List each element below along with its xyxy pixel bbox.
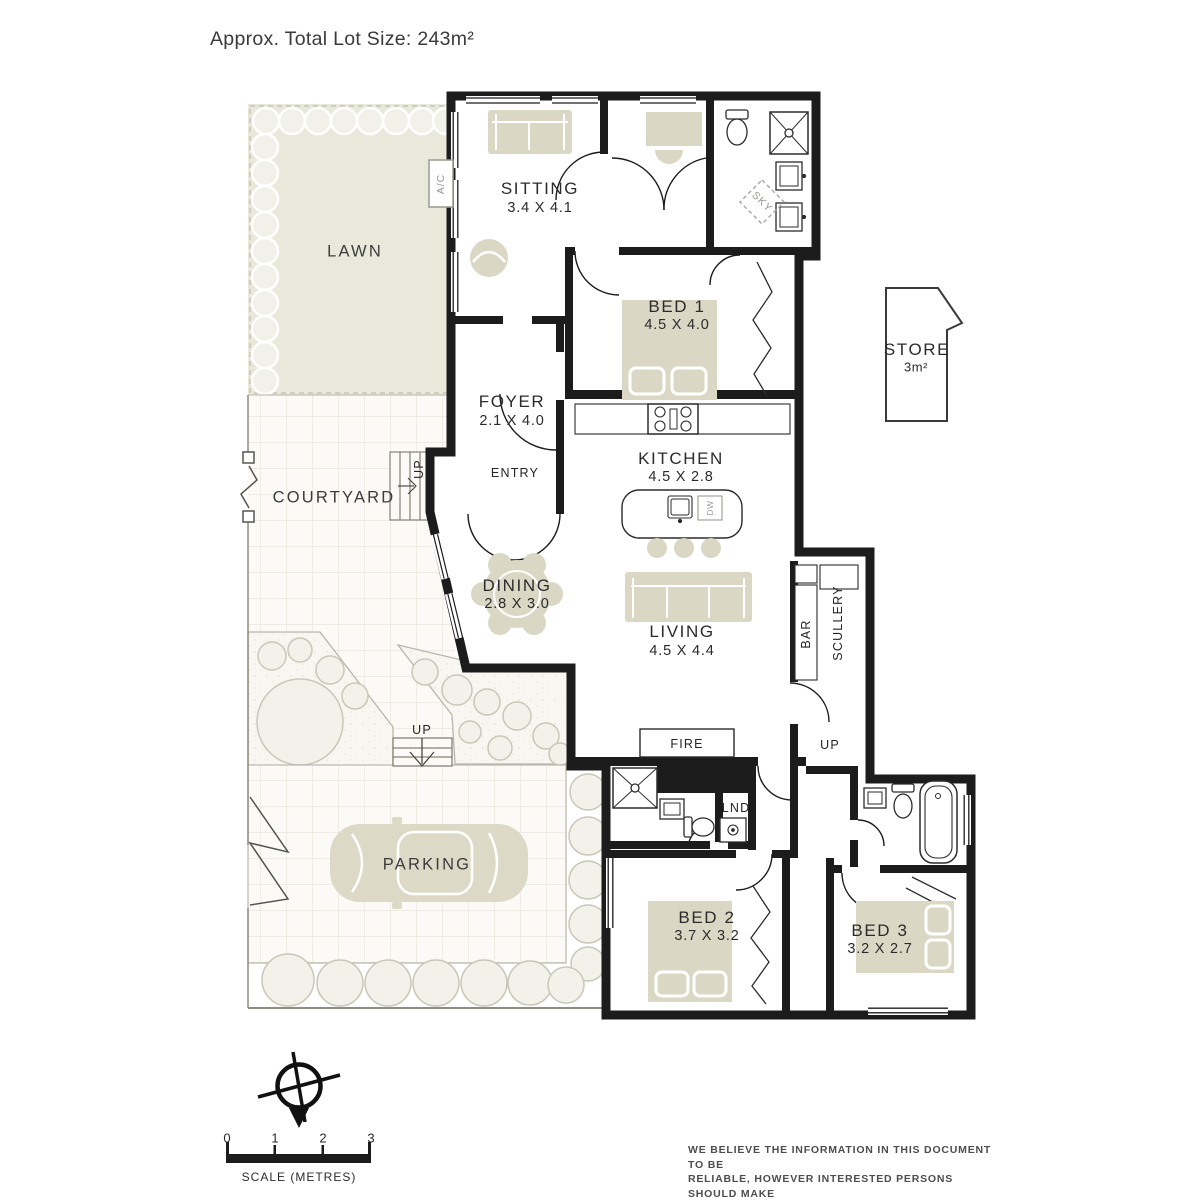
room-dims-kitchen: 4.5 X 2.8 xyxy=(648,469,713,485)
scale-tick-1: 1 xyxy=(271,1131,278,1146)
room-label-bed2: BED 2 xyxy=(678,908,735,928)
room-dims-foyer: 2.1 X 4.0 xyxy=(479,413,544,429)
room-label-sitting: SITTING xyxy=(501,179,579,199)
scale-tick-0: 0 xyxy=(223,1131,230,1146)
room-dims-store: 3m² xyxy=(904,360,928,375)
floor-plan-drawing xyxy=(0,0,1200,1200)
up-label-courtyard: UP xyxy=(412,723,432,737)
disclaimer-line: RELIABLE, HOWEVER INTERESTED PERSONS SHO… xyxy=(688,1172,1000,1200)
room-dims-sitting: 3.4 X 4.1 xyxy=(507,200,572,216)
scale-label: SCALE (METRES) xyxy=(242,1170,357,1184)
room-label-living: LIVING xyxy=(649,622,714,642)
toilet-lower-icon xyxy=(684,817,714,837)
room-dims-living: 4.5 X 4.4 xyxy=(649,643,714,659)
room-label-store: STORE xyxy=(884,340,950,360)
up-label-entry: UP xyxy=(412,459,426,479)
area-label-lawn: LAWN xyxy=(327,243,383,262)
room-label-bed1: BED 1 xyxy=(648,297,705,317)
scullery-label: SCULLERY xyxy=(831,585,845,660)
kitchen-island-icon xyxy=(622,490,742,538)
up-label-rear: UP xyxy=(820,738,840,752)
room-label-foyer: FOYER xyxy=(479,392,546,412)
room-dims-bed2: 3.7 X 3.2 xyxy=(674,928,739,944)
bathtub-icon xyxy=(920,781,957,863)
room-label-bed3: BED 3 xyxy=(851,921,908,941)
bar-label: BAR xyxy=(799,619,813,648)
disclaimer-line: WE BELIEVE THE INFORMATION IN THIS DOCUM… xyxy=(688,1143,1000,1172)
compass-icon xyxy=(258,1052,340,1128)
entry-label: ENTRY xyxy=(491,466,539,480)
disclaimer: WE BELIEVE THE INFORMATION IN THIS DOCUM… xyxy=(688,1143,1000,1200)
toilet-top-icon xyxy=(726,110,748,145)
floor-plan-page: Approx. Total Lot Size: 243m² LAWN COURT… xyxy=(0,0,1200,1200)
room-label-dining: DINING xyxy=(482,576,551,596)
desk-nook xyxy=(646,112,702,146)
shower-top-icon xyxy=(770,112,808,154)
room-dims-bed1: 4.5 X 4.0 xyxy=(644,317,709,333)
shower-lower-icon xyxy=(613,768,657,808)
room-dims-dining: 2.8 X 3.0 xyxy=(484,596,549,612)
room-dims-bed3: 3.2 X 2.7 xyxy=(847,941,912,957)
dw-label: DW xyxy=(705,500,715,515)
scale-bar xyxy=(226,1142,371,1163)
area-label-courtyard: COURTYARD xyxy=(273,489,396,508)
washing-machine-icon xyxy=(720,818,746,842)
stove-icon xyxy=(648,404,698,434)
scale-tick-3: 3 xyxy=(367,1131,374,1146)
laundry-label: LND xyxy=(722,801,751,815)
scale-tick-2: 2 xyxy=(319,1131,326,1146)
room-label-kitchen: KITCHEN xyxy=(638,449,724,469)
fire-label: FIRE xyxy=(670,737,703,751)
sink-lower-icon xyxy=(660,799,684,819)
sofa-living xyxy=(625,572,752,622)
sink-bath2-icon xyxy=(864,788,886,808)
lot-size-title: Approx. Total Lot Size: 243m² xyxy=(210,28,474,51)
toilet-bath2-icon xyxy=(892,784,914,818)
ac-label: A/C xyxy=(435,174,447,195)
steps-courtyard xyxy=(393,738,452,766)
area-label-parking: PARKING xyxy=(383,856,471,875)
